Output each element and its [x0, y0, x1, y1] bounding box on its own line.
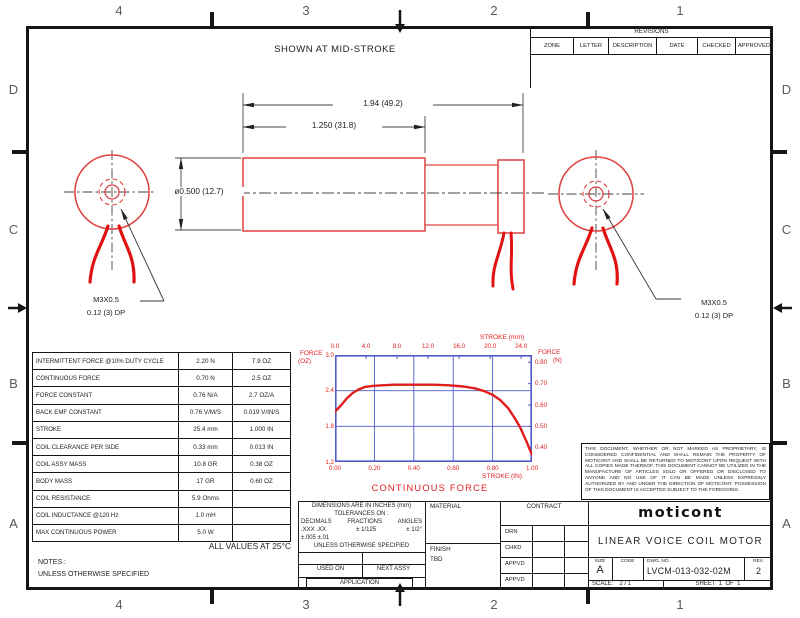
thread-note-right-line2: 0.12 (3) DP — [668, 309, 760, 322]
chart-left-tick: 3.0 — [319, 352, 334, 359]
chart-top-tick: 0.0 — [325, 343, 345, 350]
divider-line — [362, 552, 363, 577]
chart-bottom-tick: 0.40 — [403, 465, 425, 472]
spec-cell: 0.33 mm — [179, 439, 233, 455]
spec-cell: COIL RESISTANCE — [33, 491, 179, 507]
tolerance-angles-header: ANGLES — [398, 519, 422, 525]
spec-cell: 0.013 IN — [233, 439, 290, 455]
chart-left-axis-label-2: (OZ) — [298, 358, 311, 365]
zone-letter-right: A — [779, 516, 794, 531]
spec-row: MAX CONTINUOUS POWER5.0 W — [33, 524, 290, 541]
thread-note-left-line2: 0.12 (3) DP — [58, 306, 154, 319]
revisions-column-zone: ZONE — [531, 38, 574, 54]
chart-bottom-axis-label: STROKE (IN) — [462, 473, 542, 480]
chart-left-tick: 2.4 — [319, 387, 334, 394]
chart-right-tick: 0.70 — [535, 380, 552, 387]
drawing-title-cell: LINEAR VOICE COIL MOTOR — [588, 525, 773, 557]
spec-cell: 17 GR — [179, 473, 233, 489]
notes-line: UNLESS OTHERWISE SPECIFIED — [38, 571, 149, 578]
signature-row-label: APPVD — [505, 577, 525, 583]
chart-left-tick: 1.8 — [319, 423, 334, 430]
divider-line — [500, 557, 588, 558]
chart-right-tick: 0.50 — [535, 423, 552, 430]
tolerance-angles-value: ± 1/2° — [406, 527, 422, 533]
revisions-column-approved: APPROVED — [736, 38, 772, 54]
divider-line — [298, 501, 773, 502]
spec-row: STROKE25.4 mm1.000 IN — [33, 421, 290, 438]
spec-cell — [233, 491, 290, 507]
spec-cell: 0.60 OZ — [233, 473, 290, 489]
spec-cell: 0.76 N/A — [179, 387, 233, 403]
dwg-no-value: LVCM-013-032-02M — [647, 566, 731, 576]
tolerance-decimals-value2: ±.005 ±.01 — [301, 535, 329, 541]
spec-cell: 1.0 mH — [179, 508, 233, 524]
divider-line — [425, 543, 500, 544]
divider-line — [588, 525, 773, 526]
spec-cell: 0.019 V/IN/S — [233, 405, 290, 421]
side-view — [243, 158, 524, 233]
zone-number-bottom: 2 — [484, 597, 504, 612]
spec-cell: 25.4 mm — [179, 422, 233, 438]
logo-cell: moticont — [588, 501, 773, 525]
chart-bottom-tick: 0.60 — [442, 465, 464, 472]
divider-line — [500, 573, 588, 574]
revisions-table: REVISIONS ZONELETTERDESCRIPTIONDATECHECK… — [530, 26, 773, 55]
spec-cell: 2.5 OZ — [233, 370, 290, 386]
tolerance-line1: DIMENSIONS ARE IN INCHES (mm) — [300, 503, 423, 509]
zone-letter-right: C — [779, 222, 794, 237]
spec-row: COIL ASSY MASS10.8 GR0.38 OZ — [33, 455, 290, 472]
zone-number-bottom: 3 — [296, 597, 316, 612]
spec-cell: INTERMITTENT FORCE @10% DUTY CYCLE — [33, 353, 179, 369]
dim-body-length: 1.250 (31.8) — [286, 121, 382, 130]
zone-letter-left: A — [6, 516, 21, 531]
chart-top-axis-label: STROKE (mm) — [462, 334, 542, 341]
zone-number-top: 1 — [670, 3, 690, 18]
front-view-right — [548, 150, 644, 284]
revisions-columns: ZONELETTERDESCRIPTIONDATECHECKEDAPPROVED — [531, 38, 772, 54]
zone-letter-left: D — [6, 82, 21, 97]
company-logo: moticont — [638, 505, 723, 521]
spec-row: COIL CLEARANCE PER SIDE0.33 mm0.013 IN — [33, 438, 290, 455]
chart-top-tick: 12.0 — [418, 343, 438, 350]
divider-line — [425, 501, 426, 590]
sheet-cell: SHEET 1 OF 1 — [663, 581, 773, 587]
chart-right-tick: 0.40 — [535, 444, 552, 451]
tolerance-values: .XXX .XX ± 1/125 ± 1/2° — [301, 527, 422, 533]
spec-cell: 5.0 W — [179, 525, 233, 541]
chart-title: CONTINUOUS FORCE — [358, 483, 502, 493]
spec-cell: MAX CONTINUOUS POWER — [33, 525, 179, 541]
chart-right-tick: 0.60 — [535, 402, 552, 409]
rev-value: 2 — [744, 566, 773, 576]
specifications-table: INTERMITTENT FORCE @10% DUTY CYCLE2.20 N… — [32, 352, 291, 542]
spec-cell: 0.76 V/M/S — [179, 405, 233, 421]
dwg-no-label: DWG. NO. — [647, 559, 670, 564]
tolerance-decimals-value: .XXX .XX — [301, 527, 326, 533]
chart-top-tick: 20.0 — [480, 343, 500, 350]
spec-cell: 1.000 IN — [233, 422, 290, 438]
spec-row: BACK EMF CONSTANT0.76 V/M/S0.019 V/IN/S — [33, 404, 290, 421]
divider-line — [500, 525, 588, 526]
finish-value: TBD — [430, 556, 443, 563]
dim-overall-length: 1.94 (49.2) — [333, 99, 433, 108]
spec-cell: BODY MASS — [33, 473, 179, 489]
divider-line — [564, 525, 565, 590]
revisions-column-letter: LETTER — [574, 38, 609, 54]
thread-note-left-line1: M3X0.5 — [58, 293, 154, 306]
thread-note-right-line1: M3X0.5 — [668, 296, 760, 309]
zone-number-bottom: 1 — [670, 597, 690, 612]
tolerance-decimals-header: DECIMALS — [301, 519, 332, 525]
zone-letter-left: B — [6, 376, 21, 391]
spec-cell: 2.7 OZ/A — [233, 387, 290, 403]
finish-label: FINISH — [430, 546, 451, 553]
spec-cell — [233, 525, 290, 541]
thread-note-right: M3X0.5 0.12 (3) DP — [668, 296, 760, 322]
tolerance-fractions-value: ± 1/125 — [356, 527, 376, 533]
revisions-column-checked: CHECKED — [698, 38, 736, 54]
spec-cell: COIL ASSY MASS — [33, 456, 179, 472]
size-label: SIZE — [588, 559, 612, 564]
divider-line — [643, 557, 644, 580]
chart-right-axis-label-2: (N) — [553, 357, 562, 364]
chart-top-tick: 8.0 — [387, 343, 407, 350]
chart-bottom-tick: 0.80 — [482, 465, 504, 472]
divider-line — [500, 541, 588, 542]
divider-line — [744, 557, 745, 580]
notes-label: NOTES : — [38, 559, 66, 566]
spec-row: CONTINUOUS FORCE0.70 N2.5 OZ — [33, 369, 290, 386]
scale-value: 2 / 1 — [619, 581, 631, 587]
material-label: MATERIAL — [430, 503, 461, 510]
spec-cell: BACK EMF CONSTANT — [33, 405, 179, 421]
zone-number-bottom: 4 — [109, 597, 129, 612]
spec-cell: COIL CLEARANCE PER SIDE — [33, 439, 179, 455]
chart-right-tick: 0.80 — [535, 359, 552, 366]
spec-row: COIL INDUCTANCE @120 Hz1.0 mH — [33, 507, 290, 524]
tolerance-headers: DECIMALS FRACTIONS ANGLES — [301, 519, 422, 525]
spec-row: INTERMITTENT FORCE @10% DUTY CYCLE2.20 N… — [33, 353, 290, 369]
divider-line — [298, 577, 425, 578]
divider-line — [588, 557, 773, 558]
zone-letter-right: D — [779, 82, 794, 97]
spec-row: FORCE CONSTANT0.76 N/A2.7 OZ/A — [33, 386, 290, 403]
signature-row-label: APPVD — [505, 561, 525, 567]
divider-line — [500, 501, 501, 590]
used-on-label: USED ON — [300, 566, 361, 572]
spec-cell: FORCE CONSTANT — [33, 387, 179, 403]
view-caption: SHOWN AT MID-STROKE — [255, 44, 415, 55]
next-assy-label: NEXT ASSY — [363, 566, 424, 572]
divider-line — [663, 580, 664, 590]
application-cell: APPLICATION — [306, 578, 413, 589]
spec-row: COIL RESISTANCE5.9 Ohms — [33, 490, 290, 507]
signature-row-label: CHKD — [505, 545, 521, 551]
zone-number-top: 2 — [484, 3, 504, 18]
revisions-column-date: DATE — [657, 38, 698, 54]
chart-top-tick: 16.0 — [449, 343, 469, 350]
contract-label: CONTRACT — [500, 503, 588, 510]
chart-bottom-tick: 0.20 — [363, 465, 385, 472]
code-label: CODE — [612, 559, 643, 564]
divider-line — [532, 525, 533, 590]
spec-cell: 7.9 OZ — [233, 353, 290, 369]
chart-right-axis-label-1: FORCE — [538, 349, 560, 356]
spec-footnote: ALL VALUES AT 25°C — [150, 541, 291, 551]
spec-cell: 0.70 N — [179, 370, 233, 386]
chart-left-tick: 1.2 — [319, 459, 334, 466]
side-view-wires — [493, 233, 513, 289]
divider-line — [530, 55, 531, 88]
spec-cell: 5.9 Ohms — [179, 491, 233, 507]
drawing-title: LINEAR VOICE COIL MOTOR — [598, 536, 763, 547]
proprietary-disclaimer: THIS DOCUMENT, WHETHER OR NOT MARKED AS … — [581, 443, 770, 500]
spec-cell: 2.20 N — [179, 353, 233, 369]
scale-label: SCALE: — [592, 581, 613, 587]
chart-bottom-tick: 1.00 — [521, 465, 543, 472]
chart-bottom-tick: 0.00 — [324, 465, 346, 472]
chart-top-tick: 24.0 — [511, 343, 531, 350]
chart-top-tick: 4.0 — [356, 343, 376, 350]
divider-line — [588, 580, 773, 581]
zone-number-top: 4 — [109, 3, 129, 18]
scale-cell: SCALE: 2 / 1 — [592, 581, 631, 587]
thread-note-left: M3X0.5 0.12 (3) DP — [58, 293, 154, 319]
revisions-column-description: DESCRIPTION — [609, 38, 657, 54]
spec-cell: CONTINUOUS FORCE — [33, 370, 179, 386]
spec-cell: STROKE — [33, 422, 179, 438]
force-curve — [335, 385, 532, 455]
revisions-title: REVISIONS — [531, 27, 772, 38]
tolerance-fractions-header: FRACTIONS — [347, 519, 382, 525]
tolerance-unless: UNLESS OTHERWISE SPECIFIED — [300, 543, 423, 549]
zone-letter-left: C — [6, 222, 21, 237]
size-value: A — [588, 564, 612, 576]
zone-letter-right: B — [779, 376, 794, 391]
zone-number-top: 3 — [296, 3, 316, 18]
spec-cell: 0.38 OZ — [233, 456, 290, 472]
engineering-drawing-sheet: SHOWN AT MID-STROKE 1.94 (49.2) 1.250 (3… — [0, 0, 800, 618]
spec-cell: COIL INDUCTANCE @120 Hz — [33, 508, 179, 524]
dim-diameter: ø0.500 (12.7) — [154, 187, 244, 196]
divider-line — [588, 501, 589, 590]
divider-line — [612, 557, 613, 580]
rev-label: REV. — [744, 559, 773, 564]
spec-cell: 10.8 GR — [179, 456, 233, 472]
spec-cell — [233, 508, 290, 524]
tolerance-line2: TOLERANCES ON : — [300, 511, 423, 517]
spec-row: BODY MASS17 GR0.60 OZ — [33, 472, 290, 489]
force-stroke-chart — [335, 355, 532, 462]
signature-row-label: DRN — [505, 529, 518, 535]
